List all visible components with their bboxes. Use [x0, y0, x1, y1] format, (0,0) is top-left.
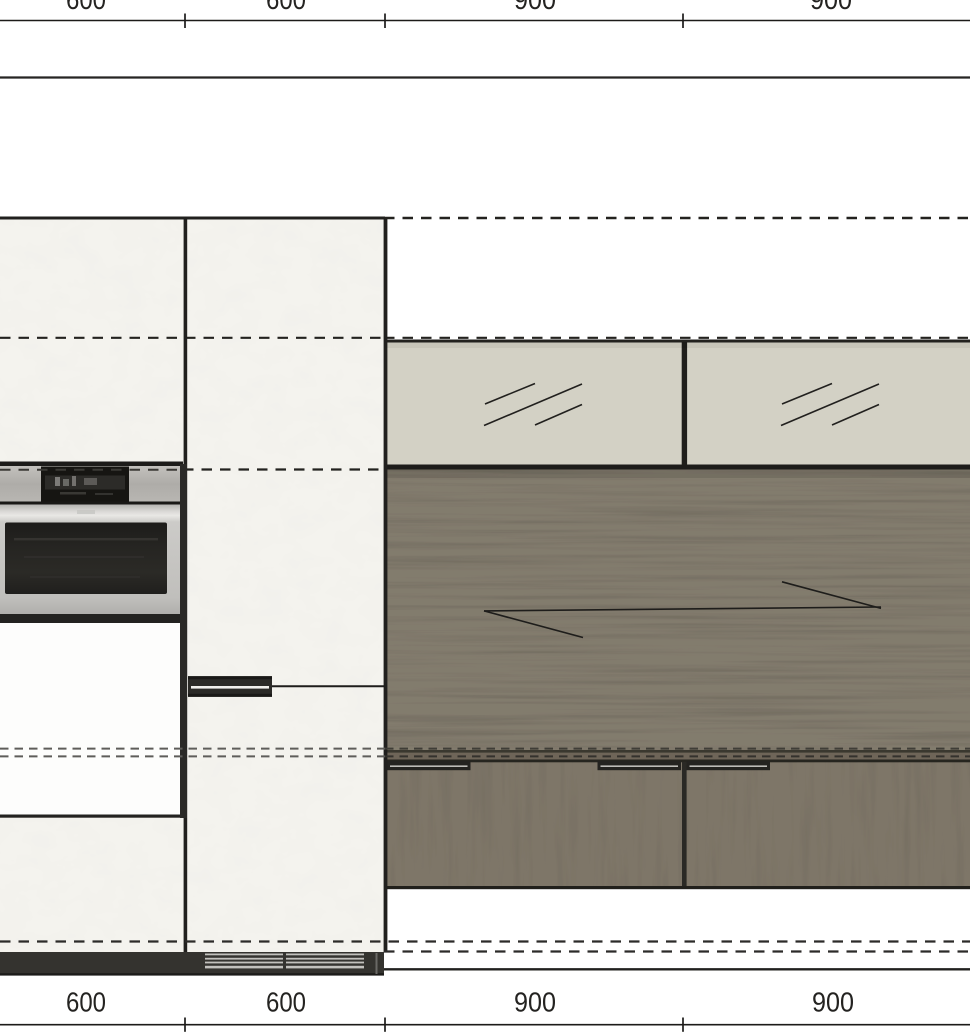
svg-text:900: 900 [514, 987, 556, 1018]
svg-text:600: 600 [66, 987, 106, 1018]
svg-text:600: 600 [266, 0, 306, 15]
svg-text:900: 900 [812, 987, 854, 1018]
svg-text:600: 600 [266, 987, 306, 1018]
svg-text:900: 900 [810, 0, 852, 15]
svg-text:900: 900 [514, 0, 556, 15]
svg-text:600: 600 [66, 0, 106, 15]
